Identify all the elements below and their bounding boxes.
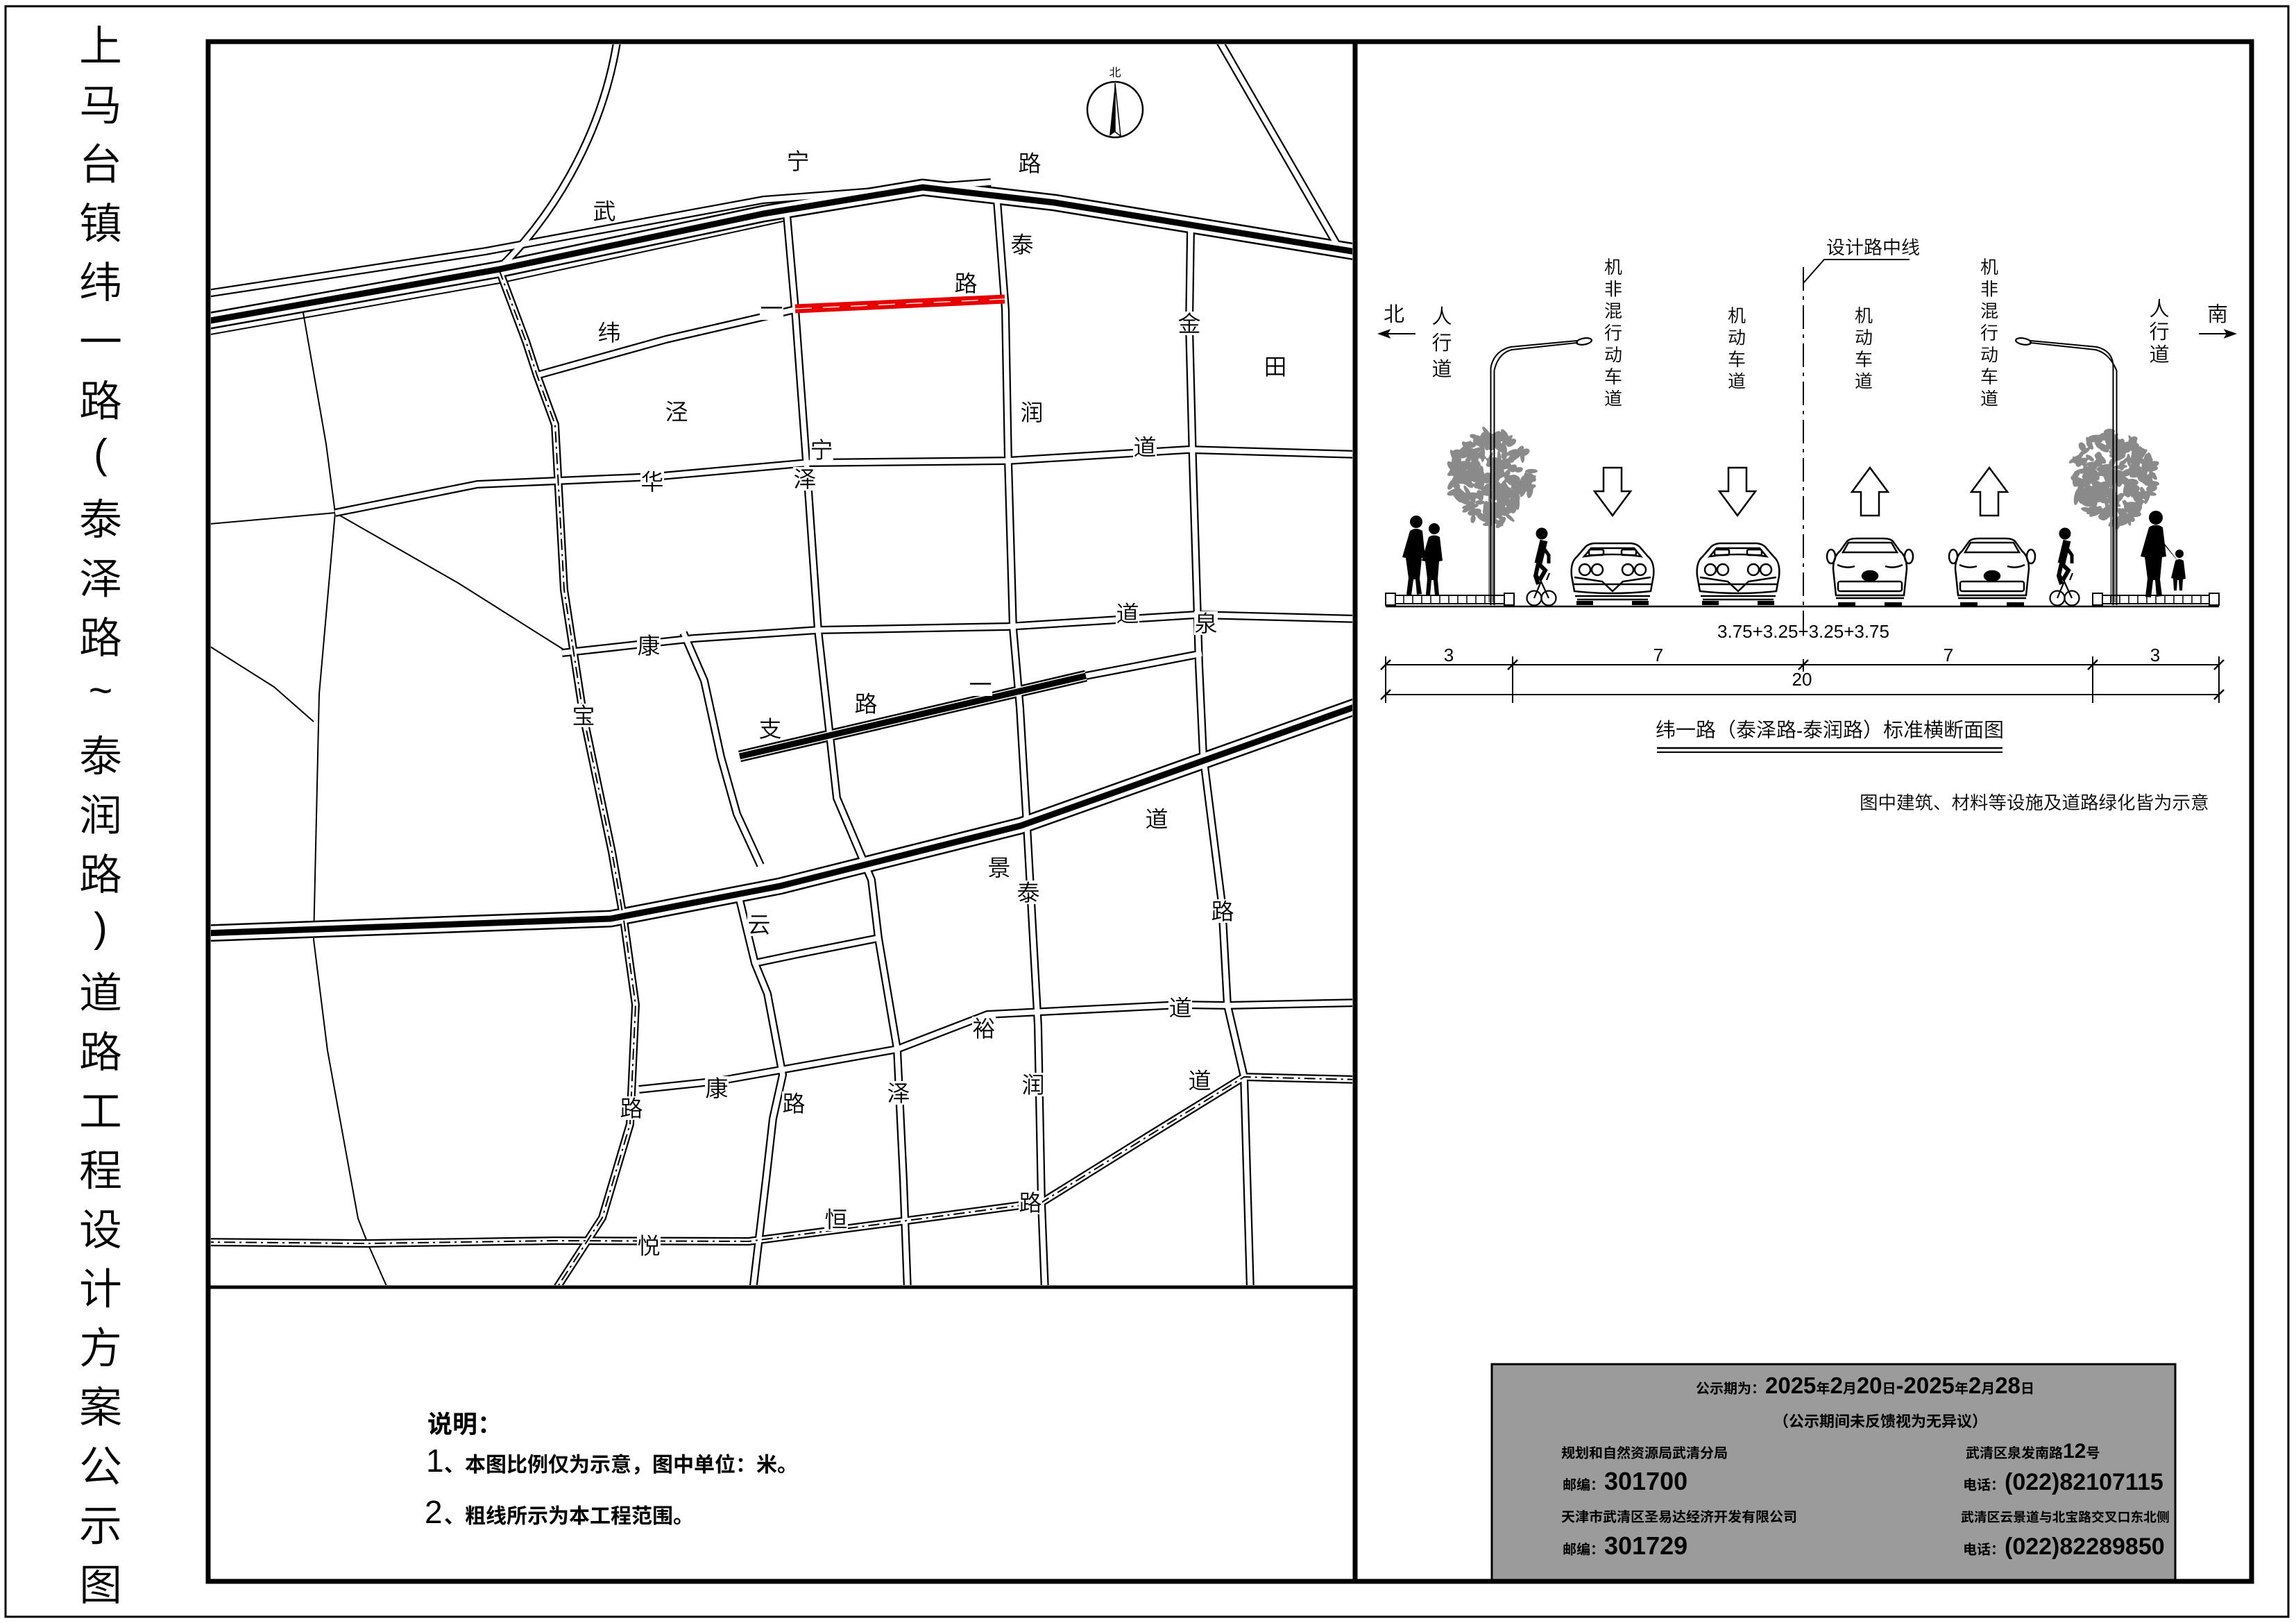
svg-text:301729: 301729 (1604, 1531, 1687, 1560)
svg-text:1: 1 (426, 1443, 444, 1479)
svg-text:~: ~ (89, 668, 112, 713)
svg-text:2025: 2025 (1765, 1373, 1816, 1398)
svg-text:(: ( (94, 431, 108, 477)
svg-text:-2025: -2025 (1896, 1373, 1955, 1398)
svg-text:(022)82107115: (022)82107115 (2005, 1469, 2163, 1495)
svg-text:2: 2 (425, 1494, 443, 1530)
svg-text:301700: 301700 (1604, 1467, 1687, 1495)
svg-text:20: 20 (1792, 669, 1812, 690)
svg-text:7: 7 (1653, 645, 1663, 665)
svg-text:3: 3 (2150, 645, 2160, 665)
svg-text:): ) (94, 904, 108, 950)
svg-text:3.75+3.25+3.25+3.75: 3.75+3.25+3.25+3.75 (1717, 621, 1889, 642)
svg-text:7: 7 (1944, 645, 1953, 665)
svg-text:2: 2 (1830, 1373, 1843, 1398)
svg-text:20: 20 (1857, 1373, 1882, 1398)
svg-text:-: - (1796, 720, 1803, 741)
svg-text:28: 28 (1995, 1373, 2021, 1398)
svg-text:3: 3 (1444, 645, 1454, 665)
svg-text:12: 12 (2063, 1440, 2086, 1463)
svg-text:(022)82289850: (022)82289850 (2005, 1533, 2165, 1560)
svg-text:2: 2 (1968, 1373, 1981, 1398)
